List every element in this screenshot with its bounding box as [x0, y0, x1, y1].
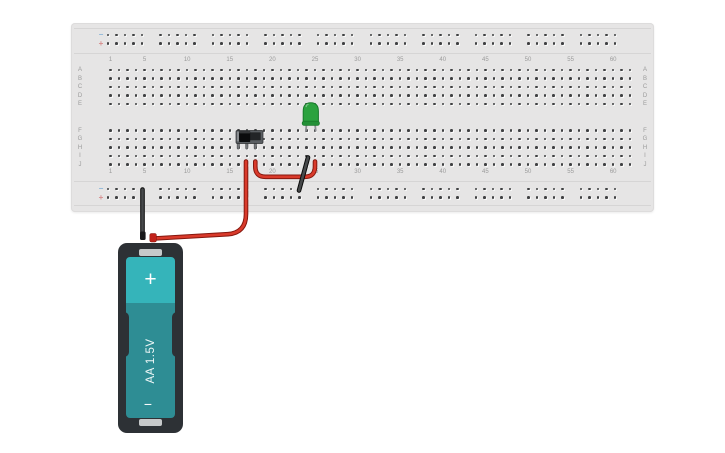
row-label: D [78, 93, 82, 99]
column-label: 40 [439, 169, 446, 175]
row-label: J [79, 162, 82, 168]
column-label: 55 [567, 57, 574, 63]
row-label: J [644, 162, 647, 168]
row-label: G [78, 136, 83, 142]
column-label: 5 [143, 57, 146, 63]
column-label: 45 [482, 57, 489, 63]
column-label: 35 [397, 57, 404, 63]
battery-aa-1-5v[interactable]: + AA 1.5V − [118, 243, 183, 433]
battery-terminal-top [139, 249, 162, 256]
row-label: I [644, 153, 646, 159]
battery-positive-lead[interactable] [150, 234, 157, 243]
column-label: 30 [354, 169, 361, 175]
column-label: 10 [184, 57, 191, 63]
column-label: 1 [109, 57, 112, 63]
rail-positive-symbol: + [99, 40, 104, 48]
column-label: 25 [312, 169, 319, 175]
column-label: 15 [226, 169, 233, 175]
row-label: A [78, 67, 82, 73]
row-label: B [643, 76, 647, 82]
column-label: 40 [439, 57, 446, 63]
row-label: E [643, 101, 647, 107]
row-label: E [78, 101, 82, 107]
column-label: 35 [397, 169, 404, 175]
column-label: 60 [610, 57, 617, 63]
column-label: 60 [610, 169, 617, 175]
column-label: 25 [312, 57, 319, 63]
row-label: F [78, 128, 82, 134]
column-label: 45 [482, 169, 489, 175]
battery-negative-label: − [144, 396, 152, 412]
row-label: A [643, 67, 647, 73]
row-label: F [643, 128, 647, 134]
battery-negative-lead[interactable] [140, 232, 146, 241]
rail-positive-symbol: + [99, 194, 104, 202]
row-label: H [78, 145, 82, 151]
row-label: G [643, 136, 648, 142]
battery-positive-label: + [144, 268, 156, 292]
column-label: 20 [269, 57, 276, 63]
column-label: 1 [109, 169, 112, 175]
battery-holder-notch-left [122, 312, 129, 357]
column-label: 50 [525, 57, 532, 63]
column-label: 50 [525, 169, 532, 175]
column-label: 20 [269, 169, 276, 175]
row-label: H [643, 145, 647, 151]
row-label: C [643, 84, 647, 90]
row-label: D [643, 93, 647, 99]
column-label: 30 [354, 57, 361, 63]
row-label: C [78, 84, 82, 90]
row-label: I [79, 153, 81, 159]
column-label: 5 [143, 169, 146, 175]
battery-holder-notch-right [172, 312, 179, 357]
column-label: 10 [184, 169, 191, 175]
row-label: B [78, 76, 82, 82]
column-label: 55 [567, 169, 574, 175]
column-label: 15 [226, 57, 233, 63]
circuit-canvas: 1155101015152020252530303535404045455050… [0, 0, 725, 453]
breadboard[interactable]: 1155101015152020252530303535404045455050… [71, 23, 654, 212]
